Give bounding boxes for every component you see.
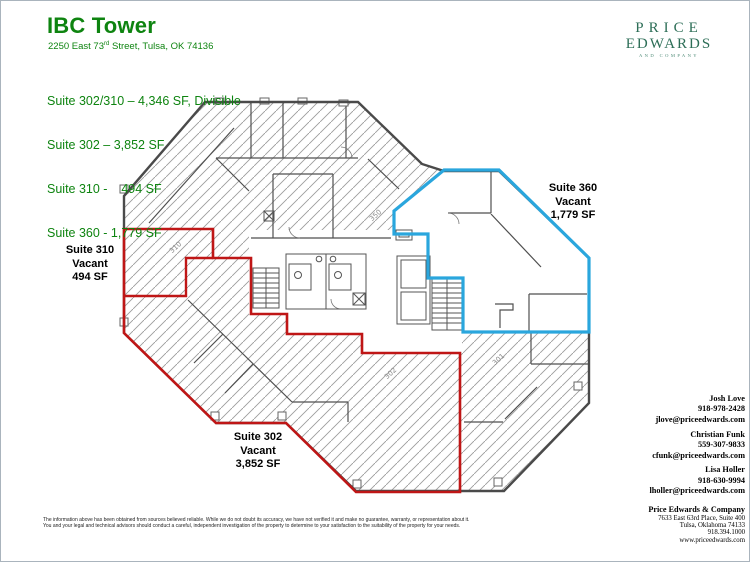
suite-310-label: Suite 310 Vacant 494 SF (47, 244, 133, 285)
contact-card: Josh Love 918-978-2428 jlove@priceedward… (648, 394, 745, 425)
logo-line-edwards: EDWARDS (613, 36, 725, 52)
contact-phone: 918-978-2428 (648, 404, 745, 414)
contact-name: Lisa Holler (648, 465, 745, 475)
company-address: 7633 East 63rd Place, Suite 400 (648, 515, 745, 522)
company-website: www.priceedwards.com (648, 537, 745, 544)
flyer-page: 310 350 302 301 IBC Tower 2250 East 73rd… (0, 0, 750, 562)
logo-line-price: PRICE (613, 21, 725, 36)
suite-360-label: Suite 360 Vacant 1,779 SF (529, 182, 617, 223)
disclaimer: The information above has been obtained … (43, 518, 479, 530)
suite-summary-line: Suite 310 - 494 SF (47, 182, 241, 197)
contact-name: Christian Funk (648, 430, 745, 440)
page-title: IBC Tower (47, 13, 156, 39)
company-phone: 918.394.1000 (648, 529, 745, 536)
disclaimer-line: You and your legal and technical advisor… (43, 524, 479, 530)
company-block: Price Edwards & Company 7633 East 63rd P… (648, 505, 745, 544)
contact-card: Christian Funk 559-307-9833 cfunk@pricee… (648, 430, 745, 461)
property-address: 2250 East 73rd Street, Tulsa, OK 74136 (48, 41, 213, 52)
contact-phone: 918-630-9994 (648, 476, 745, 486)
contact-email: jlove@priceedwards.com (648, 415, 745, 425)
contact-name: Josh Love (648, 394, 745, 404)
contact-phone: 559-307-9833 (648, 440, 745, 450)
suite-summary-line: Suite 360 - 1,779 SF (47, 226, 241, 241)
suite-summary-line: Suite 302/310 – 4,346 SF, Divisible (47, 94, 241, 109)
company-address: Tulsa, Oklahoma 74133 (648, 522, 745, 529)
price-edwards-logo: PRICE EDWARDS AND COMPANY (613, 21, 725, 60)
suite-302-label: Suite 302 Vacant 3,852 SF (214, 431, 302, 472)
suite-summary: Suite 302/310 – 4,346 SF, Divisible Suit… (47, 65, 241, 269)
company-name: Price Edwards & Company (648, 505, 745, 515)
contact-email: lholler@priceedwards.com (648, 486, 745, 496)
suite-summary-line: Suite 302 – 3,852 SF (47, 138, 241, 153)
contact-email: cfunk@priceedwards.com (648, 451, 745, 461)
contact-list: Josh Love 918-978-2428 jlove@priceedward… (648, 394, 745, 544)
contact-card: Lisa Holler 918-630-9994 lholler@priceed… (648, 465, 745, 496)
logo-line-and-company: AND COMPANY (613, 52, 725, 60)
